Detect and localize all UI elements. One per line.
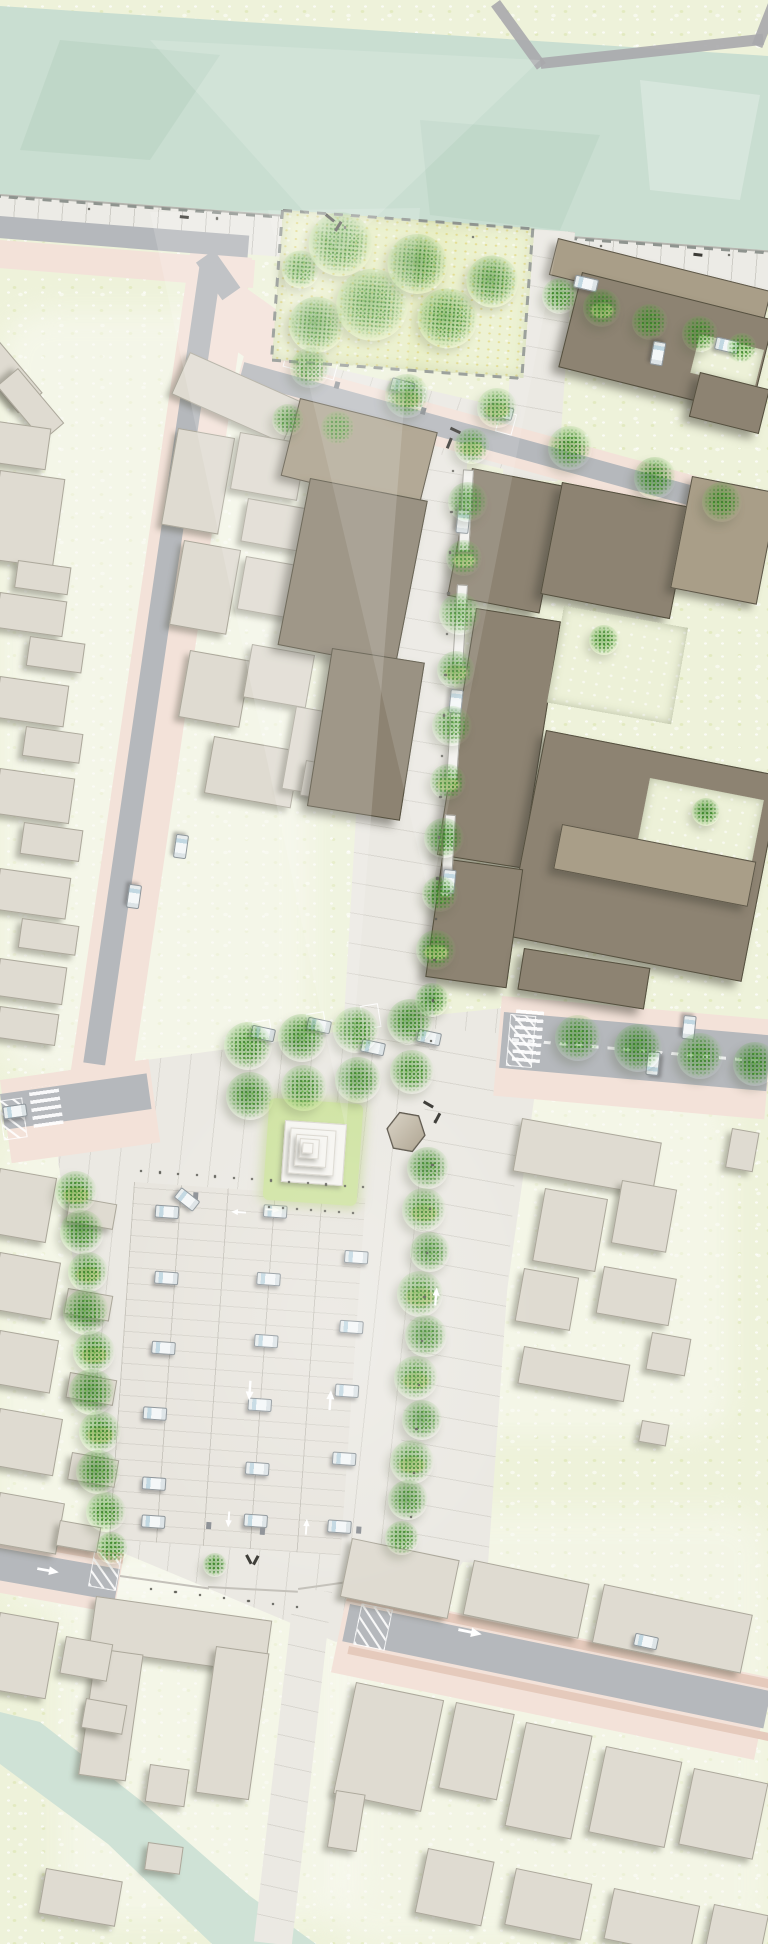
road-loop-segment [752,0,768,48]
street-tree [548,426,592,470]
existing-building [0,420,51,470]
street-tree [86,1492,126,1532]
existing-building [638,1420,669,1447]
existing-building [611,1180,677,1253]
courtyard [547,606,688,724]
existing-building [0,676,69,727]
existing-building [645,1332,691,1376]
street-tree [692,798,720,826]
street-tree [677,1033,723,1079]
street-tree [60,1210,104,1254]
street-tree [555,1015,601,1061]
existing-building [0,1612,59,1699]
street-tree [416,930,456,970]
street-tree [55,1171,97,1213]
street-tree [69,1369,115,1415]
street-tree [634,457,676,499]
existing-building [415,1848,495,1926]
existing-building [678,1768,768,1860]
street-tree [68,1252,108,1292]
street-tree [73,1331,115,1373]
plaza-glow [120,1040,540,1600]
street-tree [583,289,621,327]
existing-building [145,1764,190,1807]
existing-building [532,1188,608,1272]
street-tree [727,333,757,363]
existing-building [0,1252,61,1320]
masterplan-canvas [0,0,768,1944]
street-tree [702,482,742,522]
street-tree [614,1024,662,1072]
existing-building [0,868,71,920]
parked-car [2,1103,28,1119]
quay-bench [693,252,702,256]
existing-building [0,768,75,824]
existing-building [0,1330,59,1394]
street-tree [387,999,433,1045]
existing-building [144,1842,184,1875]
street-tree [589,625,619,655]
street-tree [96,1532,128,1564]
bollard [432,999,434,1001]
street-tree [79,1411,121,1453]
bollard [436,877,438,879]
street-tree [632,304,668,340]
street-tree [682,316,718,352]
existing-building [59,1636,113,1682]
street-tree [76,1450,120,1494]
existing-building [0,1408,63,1476]
existing-building [178,650,251,728]
crosswalk [28,1084,63,1128]
street-tree [63,1289,109,1335]
proposed-building [540,482,691,619]
existing-building [725,1128,760,1172]
bollard [433,959,435,961]
